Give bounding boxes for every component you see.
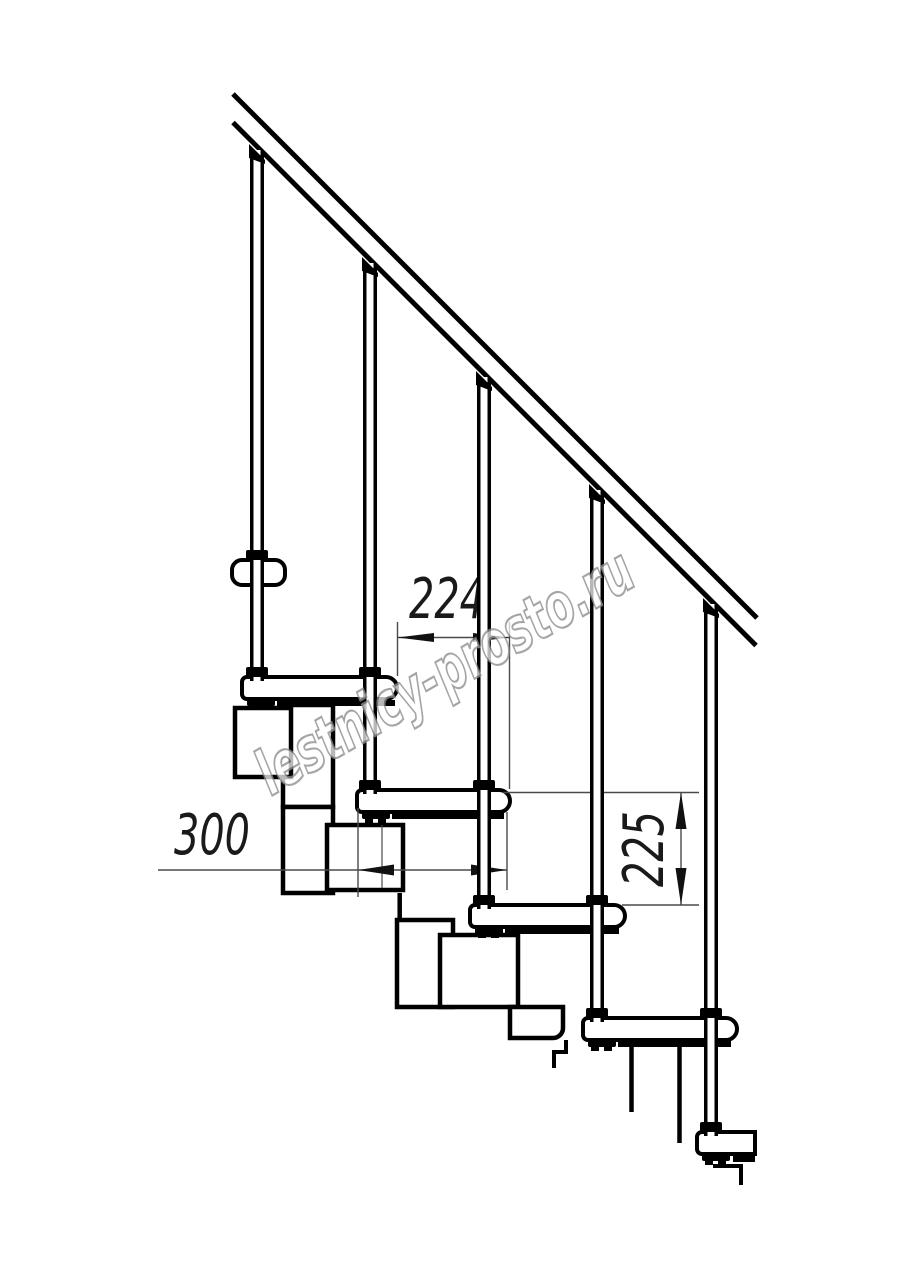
handrail (233, 94, 757, 646)
arrowhead-down (676, 868, 687, 905)
connector-tab (718, 1160, 726, 1165)
module-box (510, 1007, 563, 1038)
connector-tab (250, 705, 258, 710)
module-edge-line (713, 1166, 741, 1185)
module-box (327, 825, 403, 890)
connector-tab (378, 818, 386, 823)
step-length-label: 300 (174, 803, 250, 868)
baluster-5 (703, 598, 719, 1136)
connector-tab (478, 933, 486, 938)
handrail-bottom-line (233, 123, 756, 646)
connector-tab (365, 818, 373, 823)
arrowhead-up (676, 793, 687, 830)
baluster-collar (473, 780, 495, 790)
module-box (440, 935, 518, 1007)
connector-tab (491, 933, 499, 938)
handrail-top-line (233, 94, 757, 618)
connector-tab (705, 1160, 713, 1165)
riser-height-label: 225 (612, 811, 677, 887)
baluster-collar (246, 550, 268, 560)
connector-tab (263, 705, 271, 710)
connector-tab (591, 1046, 599, 1051)
baluster-collar (586, 1008, 608, 1018)
baluster-collar (359, 780, 381, 790)
staircase-technical-drawing: 224 300 225 (0, 0, 914, 1280)
baluster-1 (249, 144, 265, 681)
baluster-collar (586, 895, 608, 905)
baluster-collar (473, 895, 495, 905)
module-edge-line (554, 1040, 566, 1068)
connector-tab (604, 1046, 612, 1051)
drawing-canvas: 224 300 225 (0, 0, 914, 1280)
baluster-collar (246, 667, 268, 677)
baluster-collar (700, 1122, 722, 1132)
baluster-collar (700, 1008, 722, 1018)
